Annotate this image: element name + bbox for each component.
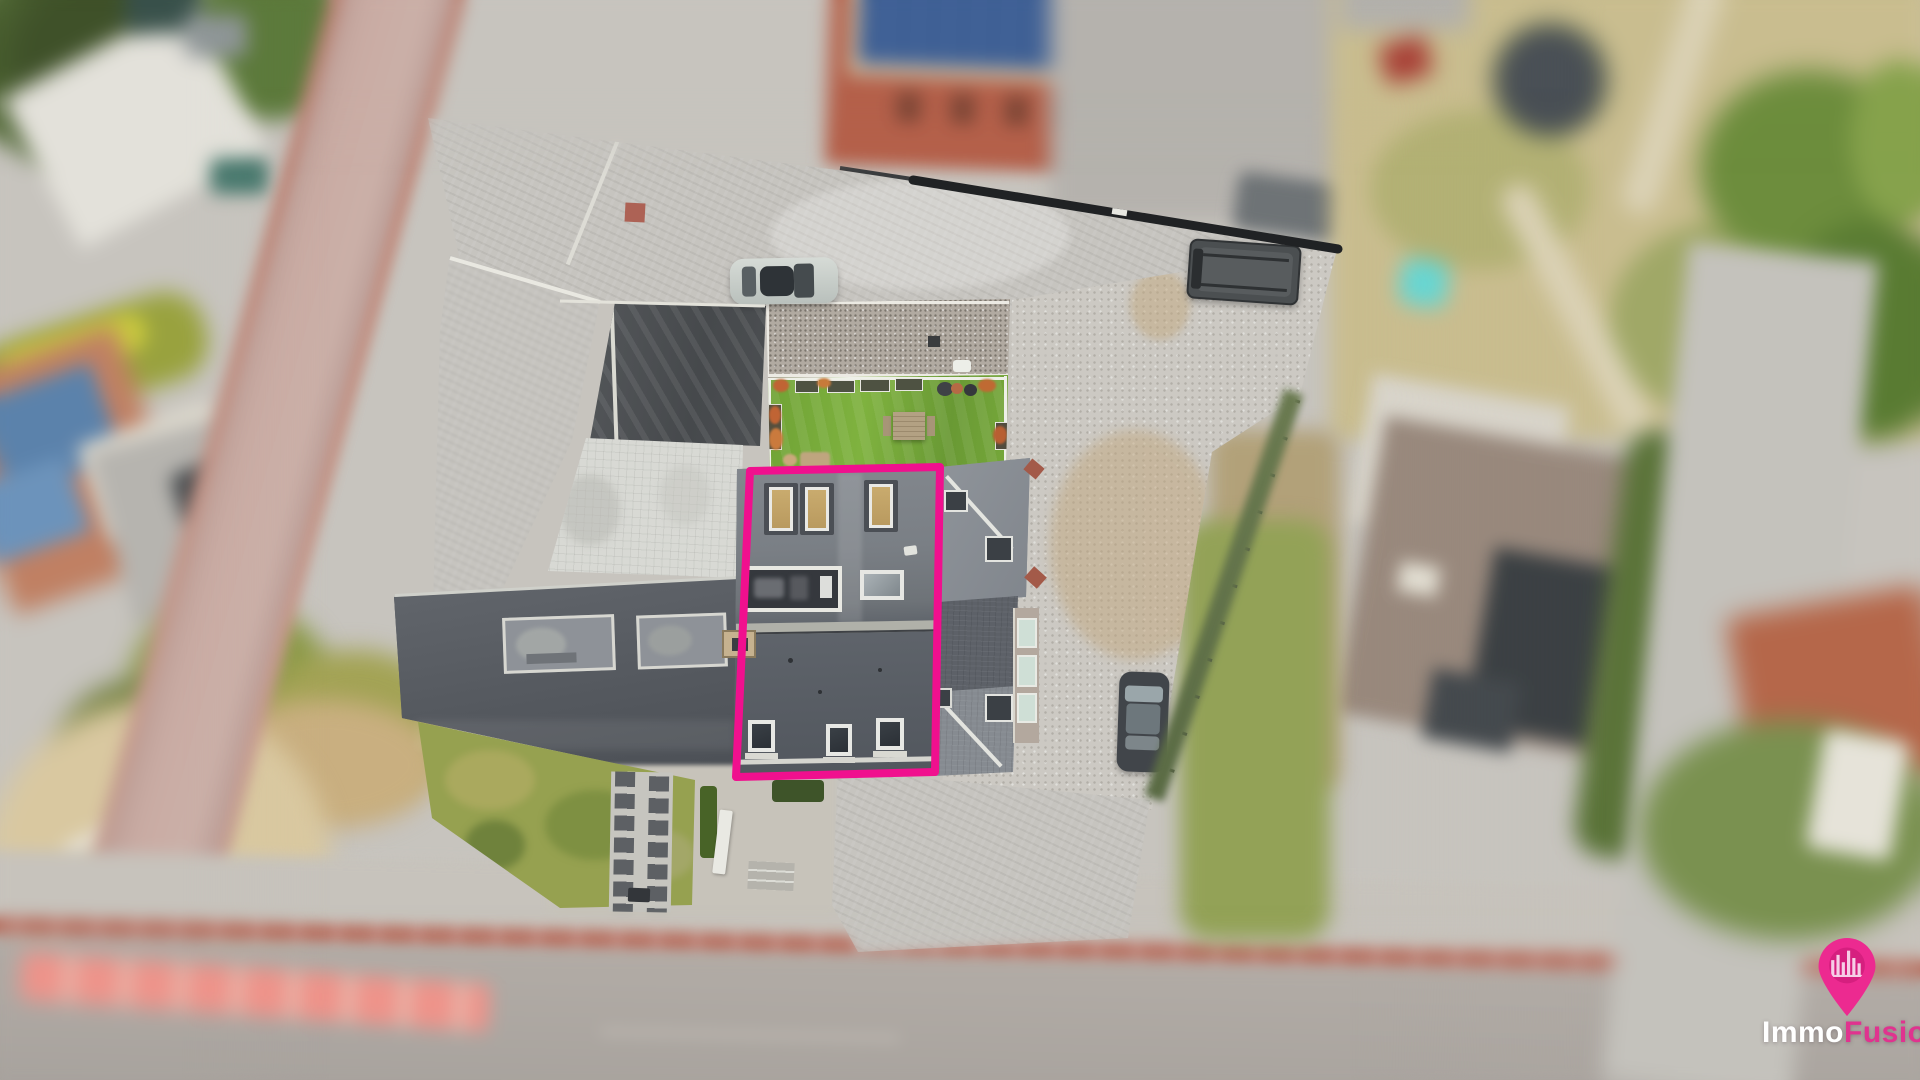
sedan-windshield [1125, 685, 1164, 702]
dormer-2-glazing [808, 490, 826, 528]
sedan-rear-glass [1125, 735, 1159, 750]
dormer-1-glazing [772, 490, 790, 528]
silver-car-rear-window [742, 266, 757, 296]
left-building-deck-2 [636, 612, 728, 669]
bay-skylight-2 [1017, 655, 1037, 687]
dormer-window-1 [764, 483, 798, 535]
dormer-3-glazing [872, 487, 890, 525]
planter-box-4 [895, 378, 923, 391]
twin-house-roof [930, 450, 1055, 785]
chimney-cap [732, 638, 748, 651]
orange-flowers-2 [817, 378, 831, 388]
twin-brick-bay [1013, 608, 1039, 743]
planter-box-2 [827, 380, 855, 393]
roof-window-low-1 [748, 720, 775, 752]
gravel-roof-parapet-left [766, 302, 769, 377]
roof-window-low-2 [826, 724, 852, 756]
immofusion-watermark: ImmoFusion [1762, 938, 1920, 1068]
silver-car-glass-roof [760, 266, 795, 297]
terrace-furniture-2 [790, 576, 808, 600]
logo-text-immo: Immo [1762, 1016, 1844, 1049]
white-table-on-roof [953, 360, 971, 372]
bay-skylight-1 [1017, 618, 1037, 648]
twin-window-3 [938, 688, 952, 708]
gravel-roof [763, 298, 1013, 383]
roof-vent-dot-2 [878, 668, 882, 672]
front-steps [747, 861, 794, 891]
terrace-white-unit [820, 576, 832, 598]
picnic-tabletop [893, 412, 925, 440]
dormer-window-3 [864, 480, 898, 532]
walkway-mat [628, 888, 650, 903]
deck-2-mottle [647, 625, 692, 657]
white-roof-blotch-1 [560, 475, 620, 545]
orange-flowers-right [993, 426, 1007, 444]
roof-terrace-opening [742, 566, 842, 612]
orange-flowers-1 [773, 379, 789, 392]
car-top-left-3 [210, 158, 268, 194]
red-paver-2 [1024, 566, 1047, 589]
round-pot-2 [964, 384, 977, 396]
silver-car [730, 257, 839, 305]
roof-window-mid [860, 570, 904, 600]
front-hedge-horizontal [772, 780, 824, 802]
roof-vent-dot-1 [788, 658, 793, 663]
picnic-table [883, 406, 935, 446]
twin-window-1 [944, 490, 968, 512]
left-building-deck-1 [502, 614, 616, 674]
kiddie-pool-blue [1397, 257, 1451, 309]
gray-strip-top-right [1340, 0, 1470, 30]
roof-window-low-3 [876, 718, 904, 750]
orange-flowers-3 [978, 379, 996, 392]
chimney [722, 630, 756, 658]
aerial-photo: ImmoFusion [0, 0, 1920, 1080]
planter-box-1 [795, 380, 819, 393]
car-top-left-2 [185, 15, 247, 57]
twin-window-2 [985, 536, 1013, 562]
logo-text: ImmoFusion [1762, 1016, 1920, 1050]
planter-box-3 [860, 379, 890, 392]
map-pin-skyline-icon [1818, 938, 1876, 1016]
roof-vent-dot-3 [818, 690, 822, 694]
red-car-top-right [1378, 34, 1435, 85]
logo-text-fusion: Fusion [1844, 1016, 1920, 1049]
trampoline [1490, 20, 1610, 140]
picnic-bench-right [927, 416, 935, 436]
orange-flowers-left-2 [769, 428, 783, 450]
roof-window-mid-glass [864, 574, 900, 596]
roof-window-low-3-glass [880, 722, 900, 746]
twin-window-4 [985, 694, 1013, 722]
gravel-tan-patch-2 [1130, 270, 1190, 340]
bay-skylight-3 [1017, 693, 1037, 723]
highlighted-house-roof [728, 458, 943, 783]
deck-1-stain [526, 652, 576, 664]
pavement-curb-diagonal [566, 129, 624, 265]
roof-window-low-1-glass [752, 724, 771, 748]
walkway-paver-column-right [647, 776, 669, 912]
silver-car-windshield [794, 263, 815, 297]
red-paver-square [625, 202, 646, 222]
flat-roof-white [540, 435, 750, 585]
roof-window-low-2-glass [830, 728, 848, 752]
orange-flowers-left-1 [769, 406, 781, 424]
terracotta-pot [951, 383, 963, 394]
white-roof-blotch-2 [660, 465, 710, 525]
gravel-roof-dark-spot [928, 336, 940, 347]
picnic-bench-left [883, 416, 891, 436]
flat-roof-dark [585, 298, 770, 448]
dark-suv [1186, 238, 1302, 306]
neighbour-solar-2 [1421, 668, 1522, 753]
sedan-roof [1126, 703, 1161, 734]
lawn-patch-1 [445, 750, 535, 810]
dormer-window-2 [800, 483, 834, 535]
terrace-furniture-1 [754, 578, 784, 598]
grass-beyond-fence [1180, 520, 1330, 940]
roof-vent-white [903, 545, 917, 556]
